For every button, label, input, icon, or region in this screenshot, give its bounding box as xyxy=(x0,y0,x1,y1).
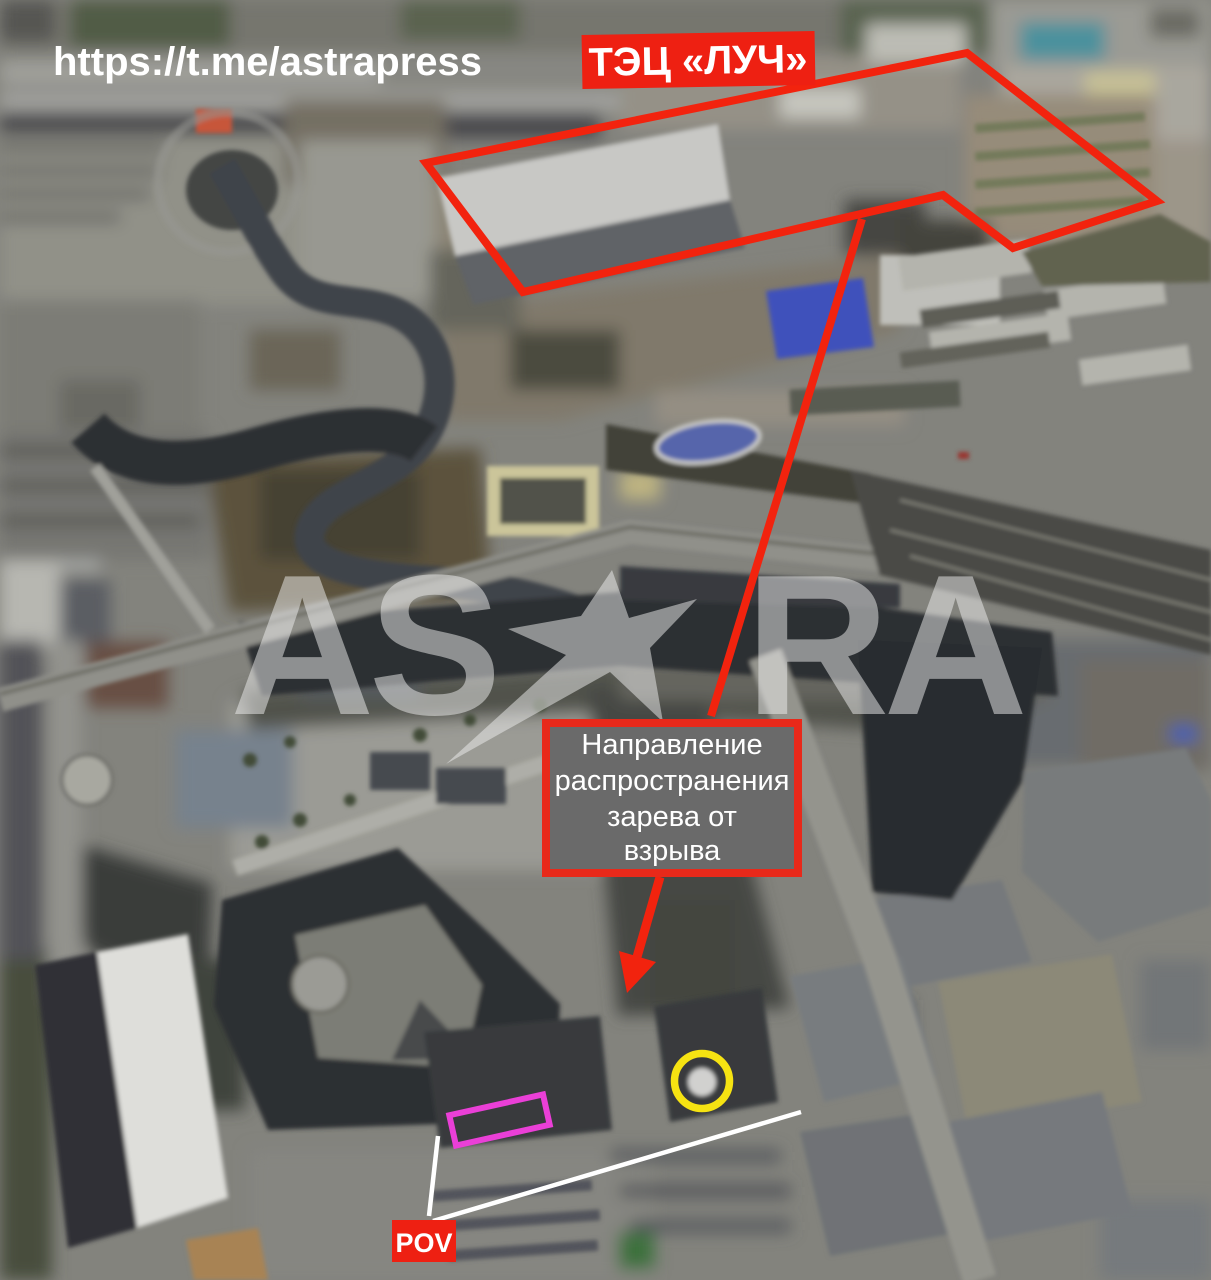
svg-text:распространения: распространения xyxy=(555,765,790,797)
svg-text:ТЭЦ «ЛУЧ»: ТЭЦ «ЛУЧ» xyxy=(588,37,808,85)
svg-text:зарева от: зарева от xyxy=(607,801,737,833)
svg-text:https://t.me/astrapress: https://t.me/astrapress xyxy=(53,40,482,84)
svg-text:взрыва: взрыва xyxy=(624,835,721,867)
svg-text:POV: POV xyxy=(395,1228,452,1258)
svg-text:AS: AS xyxy=(230,534,496,757)
svg-text:Направление: Направление xyxy=(581,729,762,761)
